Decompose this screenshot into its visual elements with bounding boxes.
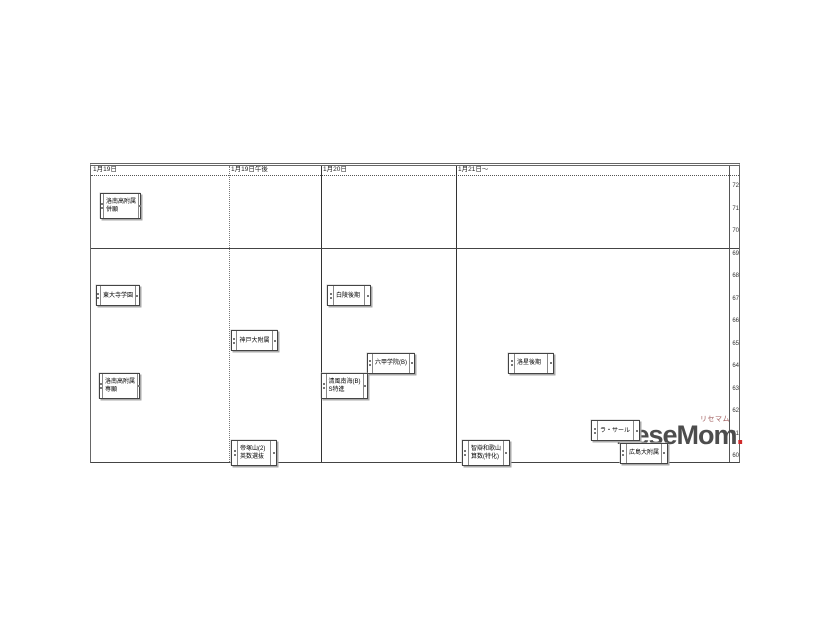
school-box-line: 算数(特化) xyxy=(471,453,501,461)
school-box-label: 広島大附属 xyxy=(627,444,661,463)
box-right-marker xyxy=(364,286,370,305)
school-box-2: 洛南高附属専願 xyxy=(99,373,140,399)
school-box-10: 智辯和歌山算数(特化) xyxy=(462,440,510,466)
box-right-marker xyxy=(409,354,414,373)
school-box-6: 六甲学院(B) xyxy=(367,353,415,374)
school-box-line: 神戸大附属 xyxy=(239,337,269,345)
school-box-3: 神戸大附属 xyxy=(231,330,278,351)
box-right-marker xyxy=(138,194,141,218)
box-right-marker xyxy=(633,421,639,440)
school-box-line: ラ・サール xyxy=(600,427,631,435)
school-box-9: ラ・サール xyxy=(591,420,640,441)
school-box-line: 洛南高附属 xyxy=(106,198,136,206)
school-box-line: 専願 xyxy=(105,386,135,394)
school-box-1: 東大寺学園 xyxy=(96,285,140,306)
school-box-label: 智辯和歌山算数(特化) xyxy=(469,441,503,465)
school-box-line: 併願 xyxy=(106,206,136,214)
school-box-line: 六甲学院(B) xyxy=(375,359,407,367)
school-box-line: 智辯和歌山 xyxy=(471,445,501,453)
box-right-marker xyxy=(270,441,276,465)
school-box-11: 広島大附属 xyxy=(620,443,668,464)
school-box-line: 清風南海(B) xyxy=(329,378,361,386)
page-canvas: 1月19日1月19日午後1月20日1月21日～ 7271706968676665… xyxy=(0,0,826,620)
box-right-marker xyxy=(272,331,277,350)
box-right-marker xyxy=(547,354,553,373)
school-box-7: 清風南海(B)S特進 xyxy=(321,373,368,399)
school-box-line: 英数選抜 xyxy=(240,453,268,461)
school-box-line: 洛星後期 xyxy=(517,359,545,367)
school-box-label: ラ・サール xyxy=(598,421,633,440)
school-box-0: 洛南高附属併願 xyxy=(100,193,141,219)
school-box-label: 洛星後期 xyxy=(515,354,547,373)
school-box-5: 白陵後期 xyxy=(327,285,371,306)
school-box-line: 広島大附属 xyxy=(629,449,659,457)
school-box-4: 帝塚山(2)英数選抜 xyxy=(231,440,277,466)
school-box-line: 白陵後期 xyxy=(336,292,362,300)
school-box-line: 東大寺学園 xyxy=(103,292,133,300)
box-right-marker xyxy=(137,374,140,398)
box-right-marker xyxy=(503,441,509,465)
school-box-label: 六甲学院(B) xyxy=(373,354,409,373)
school-box-label: 白陵後期 xyxy=(334,286,364,305)
school-boxes-layer: 洛南高附属併願東大寺学園洛南高附属専願神戸大附属帝塚山(2)英数選抜白陵後期六甲… xyxy=(90,163,740,463)
school-box-label: 東大寺学園 xyxy=(101,286,135,305)
school-box-line: S特進 xyxy=(329,386,361,394)
school-box-label: 神戸大附属 xyxy=(237,331,271,350)
school-box-label: 帝塚山(2)英数選抜 xyxy=(238,441,270,465)
school-box-label: 洛南高附属併願 xyxy=(104,194,138,218)
box-right-marker xyxy=(135,286,139,305)
box-right-marker xyxy=(363,374,368,398)
school-box-line: 洛南高附属 xyxy=(105,378,135,386)
school-box-8: 洛星後期 xyxy=(508,353,554,374)
box-right-marker xyxy=(661,444,667,463)
school-box-line: 帝塚山(2) xyxy=(240,445,268,453)
school-box-label: 洛南高附属専願 xyxy=(103,374,137,398)
school-box-label: 清風南海(B)S特進 xyxy=(327,374,363,398)
